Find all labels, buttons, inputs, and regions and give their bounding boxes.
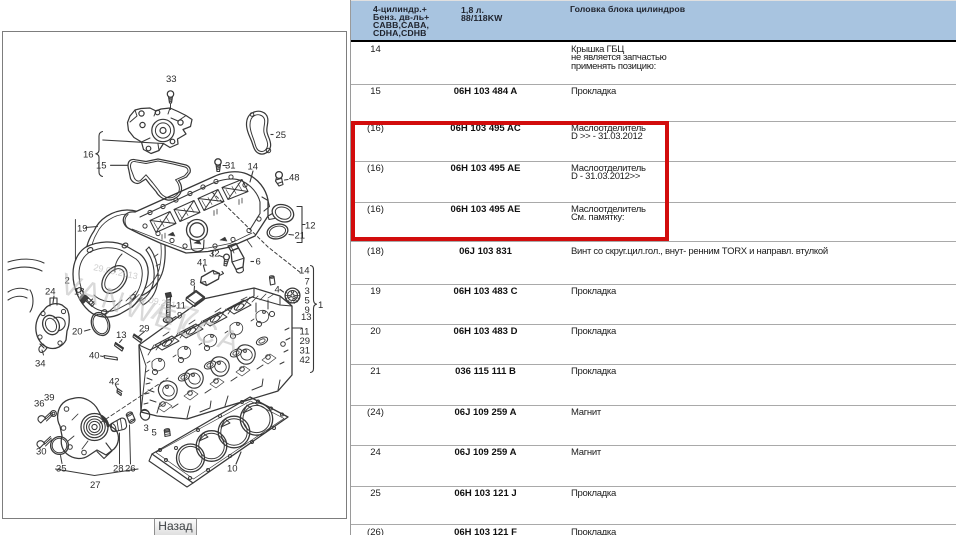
svg-text:1: 1 bbox=[318, 300, 323, 311]
svg-text:42: 42 bbox=[300, 355, 311, 366]
svg-text:6: 6 bbox=[256, 257, 261, 268]
svg-text:36: 36 bbox=[34, 399, 45, 410]
svg-text:41: 41 bbox=[197, 258, 208, 269]
svg-text:13: 13 bbox=[301, 312, 312, 323]
svg-text:8: 8 bbox=[190, 278, 195, 289]
svg-text:14: 14 bbox=[299, 266, 310, 277]
svg-text:40: 40 bbox=[89, 351, 100, 362]
svg-text:39: 39 bbox=[44, 393, 55, 404]
svg-text:48: 48 bbox=[289, 173, 300, 184]
svg-text:15: 15 bbox=[96, 161, 107, 172]
svg-text:4: 4 bbox=[275, 285, 280, 296]
svg-text:27: 27 bbox=[90, 480, 101, 491]
svg-text:19: 19 bbox=[77, 224, 88, 235]
svg-text:16: 16 bbox=[83, 150, 94, 161]
svg-text:33: 33 bbox=[166, 74, 177, 85]
svg-text:34: 34 bbox=[35, 359, 46, 370]
svg-text:14: 14 bbox=[248, 162, 259, 173]
svg-text:32: 32 bbox=[209, 249, 220, 260]
svg-text:13: 13 bbox=[116, 330, 127, 341]
svg-text:24: 24 bbox=[45, 287, 56, 298]
svg-text:31: 31 bbox=[225, 161, 236, 172]
svg-text:30: 30 bbox=[36, 447, 47, 458]
svg-text:3: 3 bbox=[144, 423, 149, 434]
svg-text:12: 12 bbox=[305, 221, 316, 232]
svg-text:35: 35 bbox=[56, 464, 67, 475]
svg-text:25: 25 bbox=[276, 130, 287, 141]
svg-text:20: 20 bbox=[72, 327, 83, 338]
svg-text:5: 5 bbox=[152, 428, 157, 439]
svg-text:28: 28 bbox=[113, 464, 124, 475]
svg-text:42: 42 bbox=[109, 377, 120, 388]
svg-text:26: 26 bbox=[125, 464, 136, 475]
svg-text:10: 10 bbox=[227, 464, 238, 475]
svg-text:21: 21 bbox=[295, 231, 306, 242]
